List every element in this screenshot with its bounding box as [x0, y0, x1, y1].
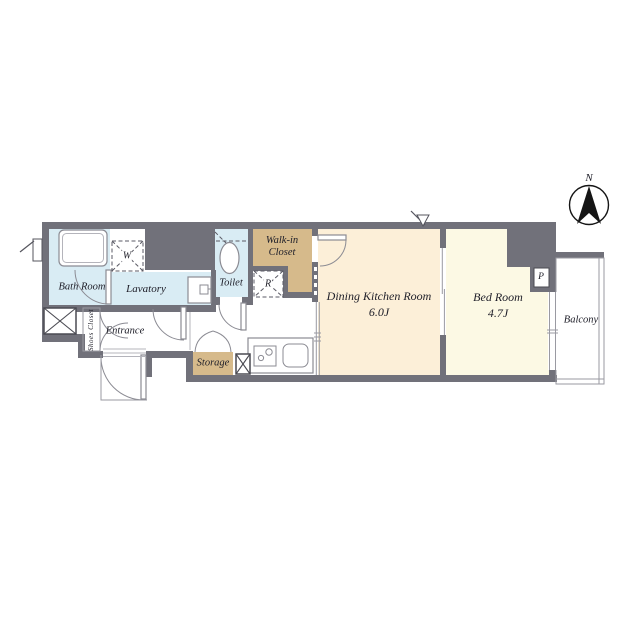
dining-kitchen-label: Dining Kitchen Room 6.0J [327, 288, 432, 320]
lavatory-label: Lavatory [126, 283, 166, 295]
storage-label: Storage [197, 358, 230, 369]
washer-marker: W [122, 251, 132, 262]
pipe-marker: P [538, 272, 544, 282]
toilet-label: Toilet [219, 278, 243, 289]
north-label: N [585, 172, 592, 184]
walk-in-closet-label: Walk-in Closet [266, 235, 298, 259]
shoes-closet-label: Shoes Closet [87, 309, 95, 351]
dining-kitchen-name: Dining Kitchen Room [327, 289, 432, 303]
walk-in-line1: Walk-in [266, 235, 298, 246]
balcony-label: Balcony [564, 315, 598, 326]
bed-room-label: Bed Room 4.7J [473, 289, 523, 321]
bath-room-label: Bath Room [59, 282, 106, 293]
labels-layer: Bath Room Lavatory Toilet Walk-in Closet… [0, 0, 640, 640]
dining-kitchen-size: 6.0J [369, 305, 389, 319]
bed-room-size: 4.7J [488, 306, 508, 320]
floor-plan: Bath Room Lavatory Toilet Walk-in Closet… [0, 0, 640, 640]
entrance-label: Entrance [106, 326, 145, 337]
fridge-marker: R [264, 279, 272, 290]
walk-in-line2: Closet [269, 247, 296, 258]
bed-room-name: Bed Room [473, 290, 523, 304]
